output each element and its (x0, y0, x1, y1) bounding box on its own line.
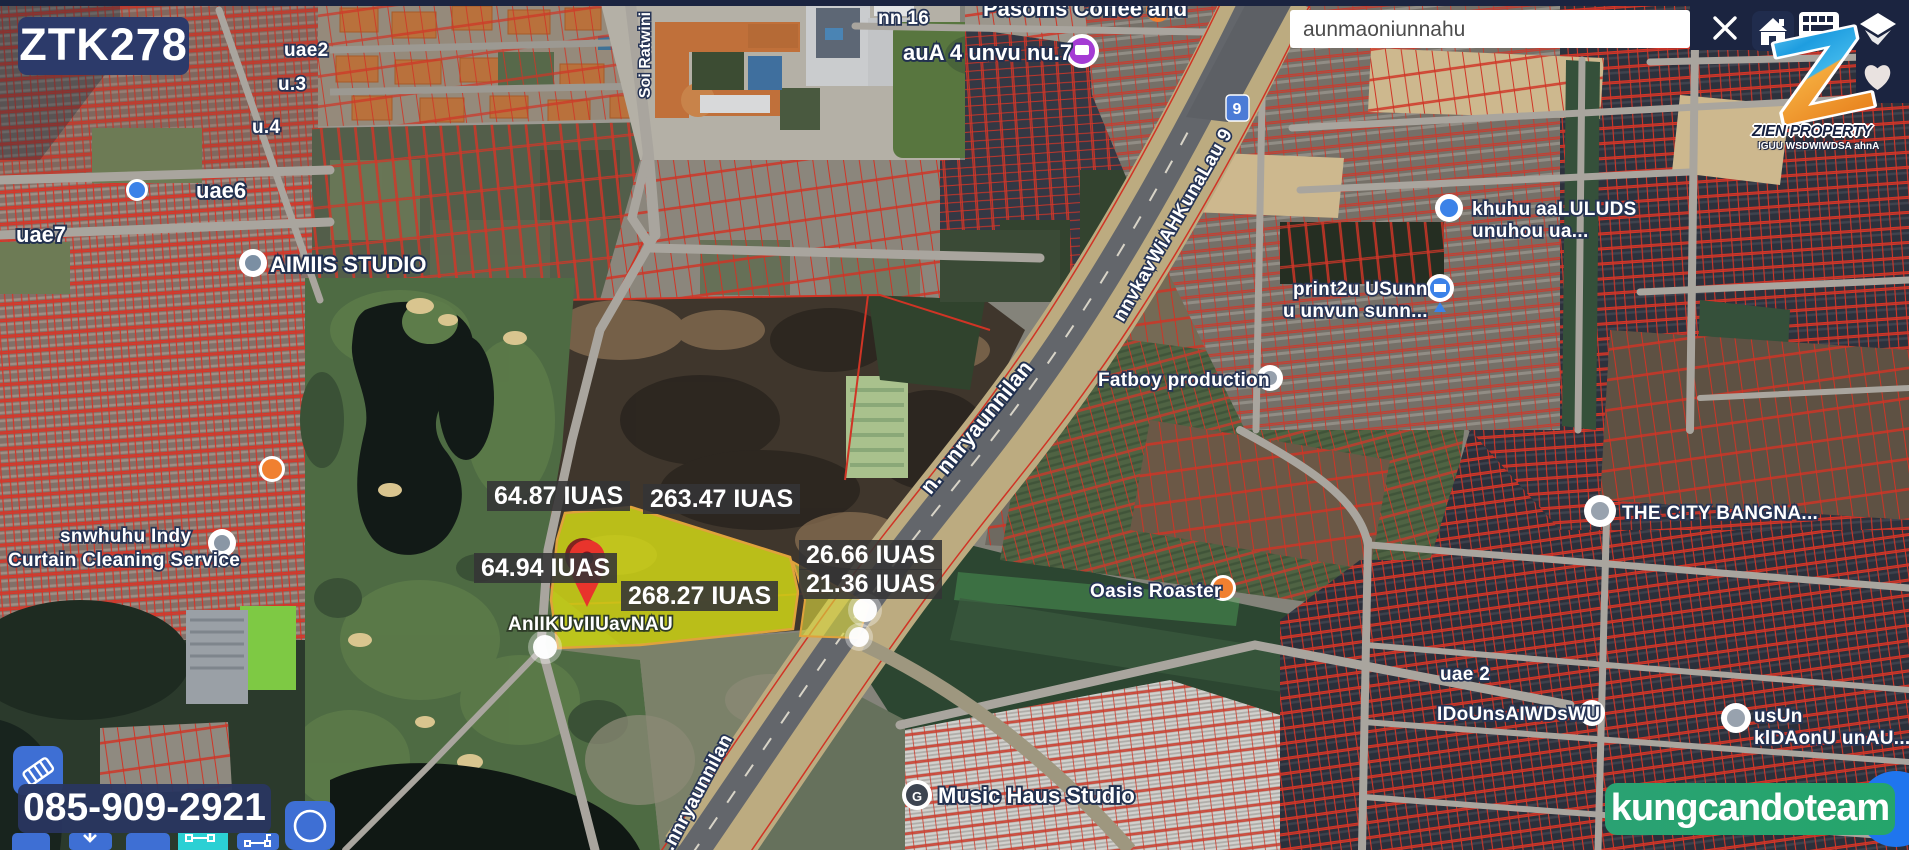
svg-text:unuhou ua...: unuhou ua... (1472, 221, 1589, 242)
svg-text:Oasis Roaster: Oasis Roaster (1090, 581, 1222, 602)
svg-text:uae6: uae6 (196, 178, 246, 203)
svg-text:9: 9 (1233, 101, 1242, 118)
svg-text:uae7: uae7 (16, 222, 66, 247)
svg-text:snwhuhu Indy: snwhuhu Indy (60, 526, 191, 547)
svg-text:Music Haus Studio: Music Haus Studio (938, 783, 1135, 808)
svg-text:u.4: u.4 (252, 117, 280, 138)
svg-text:auA 4 unvu nu.7: auA 4 unvu nu.7 (903, 40, 1072, 65)
svg-text:Fatboy production: Fatboy production (1098, 370, 1270, 391)
svg-text:print2u USunn: print2u USunn (1293, 279, 1428, 300)
svg-text:uae2: uae2 (284, 40, 329, 61)
svg-text:Soi Ratwini: Soi Ratwini (637, 12, 654, 98)
svg-text:AIMIIS STUDIO: AIMIIS STUDIO (270, 252, 426, 277)
svg-text:AnIIKUvIIUavNAU: AnIIKUvIIUavNAU (508, 614, 673, 635)
svg-text:klDAonU unAU...: klDAonU unAU... (1754, 728, 1909, 749)
svg-text:khuhu aaLULUDS: khuhu aaLULUDS (1472, 199, 1637, 220)
svg-text:usUn: usUn (1754, 706, 1803, 727)
svg-text:G: G (912, 789, 922, 804)
svg-text:u unvun sunn...: u unvun sunn... (1283, 301, 1428, 322)
svg-text:nn 16: nn 16 (878, 8, 929, 29)
svg-text:u.3: u.3 (278, 74, 306, 95)
svg-text:Curtain Cleaning Service: Curtain Cleaning Service (8, 550, 240, 571)
svg-text:uae 2: uae 2 (1440, 664, 1490, 685)
svg-text:IDoUnsAIWDsWU: IDoUnsAIWDsWU (1437, 704, 1600, 725)
svg-text:THE CITY BANGNA...: THE CITY BANGNA... (1622, 503, 1818, 524)
